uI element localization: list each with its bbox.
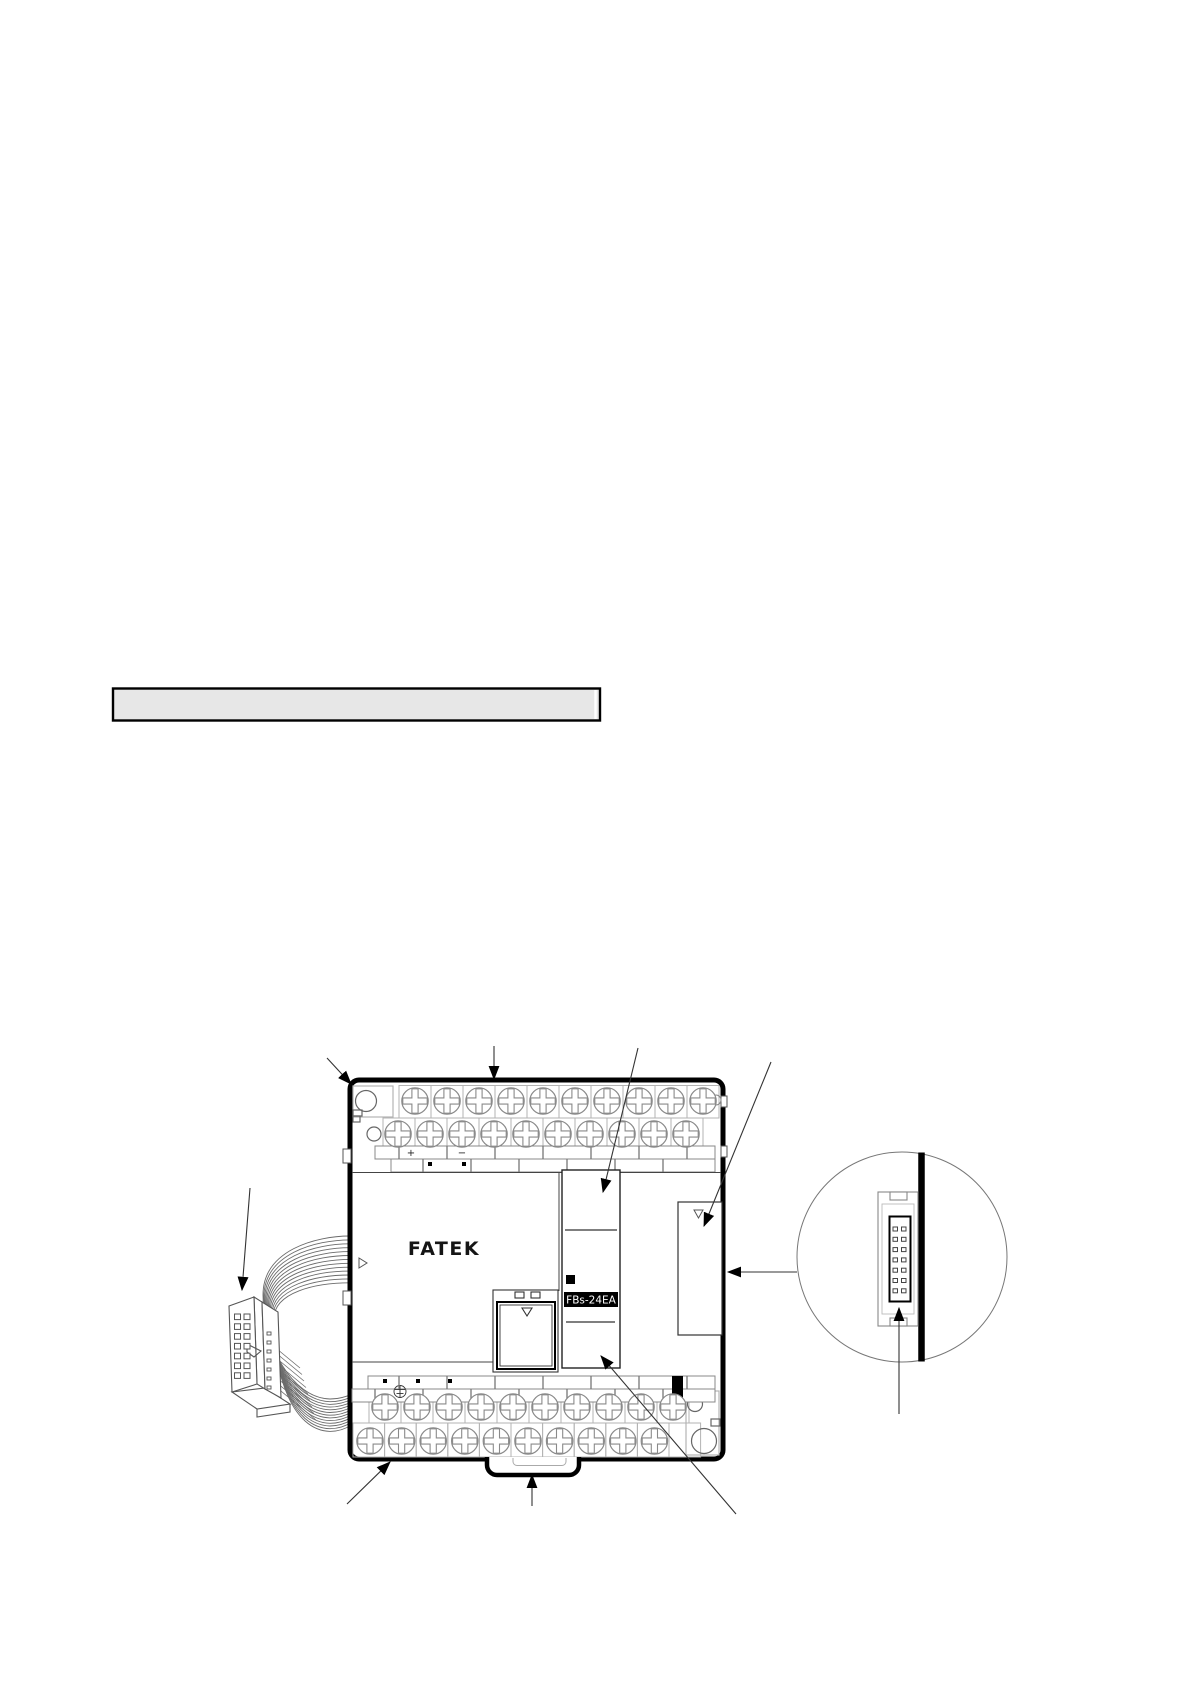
top-terminal-label-strip: + − <box>375 1146 715 1172</box>
model-label-text: FBs-24EA <box>566 1295 616 1307</box>
right-edge-tab <box>721 1096 727 1107</box>
expansion-connector-detail <box>878 1192 918 1326</box>
leader-arrow-cable-connector <box>242 1188 250 1290</box>
strip-dot <box>416 1379 420 1383</box>
connector-side-contacts <box>267 1332 271 1389</box>
plc-diagram: + − <box>229 1046 1007 1514</box>
strip-dot <box>462 1162 466 1166</box>
plc-unit: + − <box>343 1080 727 1475</box>
connector-face <box>229 1297 257 1392</box>
connector-side-plate <box>262 1302 281 1398</box>
section-heading-bar <box>113 689 600 721</box>
status-panel: FBs-24EA <box>562 1170 620 1368</box>
right-edge-tab <box>721 1146 727 1157</box>
leader-arrow-top-left-corner <box>327 1058 351 1084</box>
left-edge-clip <box>343 1291 351 1305</box>
strip-dot <box>383 1379 387 1383</box>
terminal-minus-mark: − <box>458 1148 466 1159</box>
strip-dot <box>448 1379 452 1383</box>
bottom-terminal-label-strip <box>352 1376 715 1402</box>
left-edge-clip <box>343 1149 351 1163</box>
detail-circle <box>797 1152 1007 1362</box>
terminal-plus-mark: + <box>407 1148 415 1159</box>
manual-page-canvas: + − <box>0 0 1190 1684</box>
battery-cover <box>493 1290 558 1372</box>
document-page: + − <box>0 0 1190 1684</box>
heading-bar-box <box>113 689 600 721</box>
strip-dot <box>428 1162 432 1166</box>
brand-logo-text: FATEK <box>408 1238 480 1260</box>
expansion-port-cover <box>678 1202 722 1335</box>
leader-arrow-bottom-left-corner <box>347 1462 390 1504</box>
din-rail-tab <box>487 1457 579 1475</box>
panel-black-square <box>566 1275 575 1284</box>
